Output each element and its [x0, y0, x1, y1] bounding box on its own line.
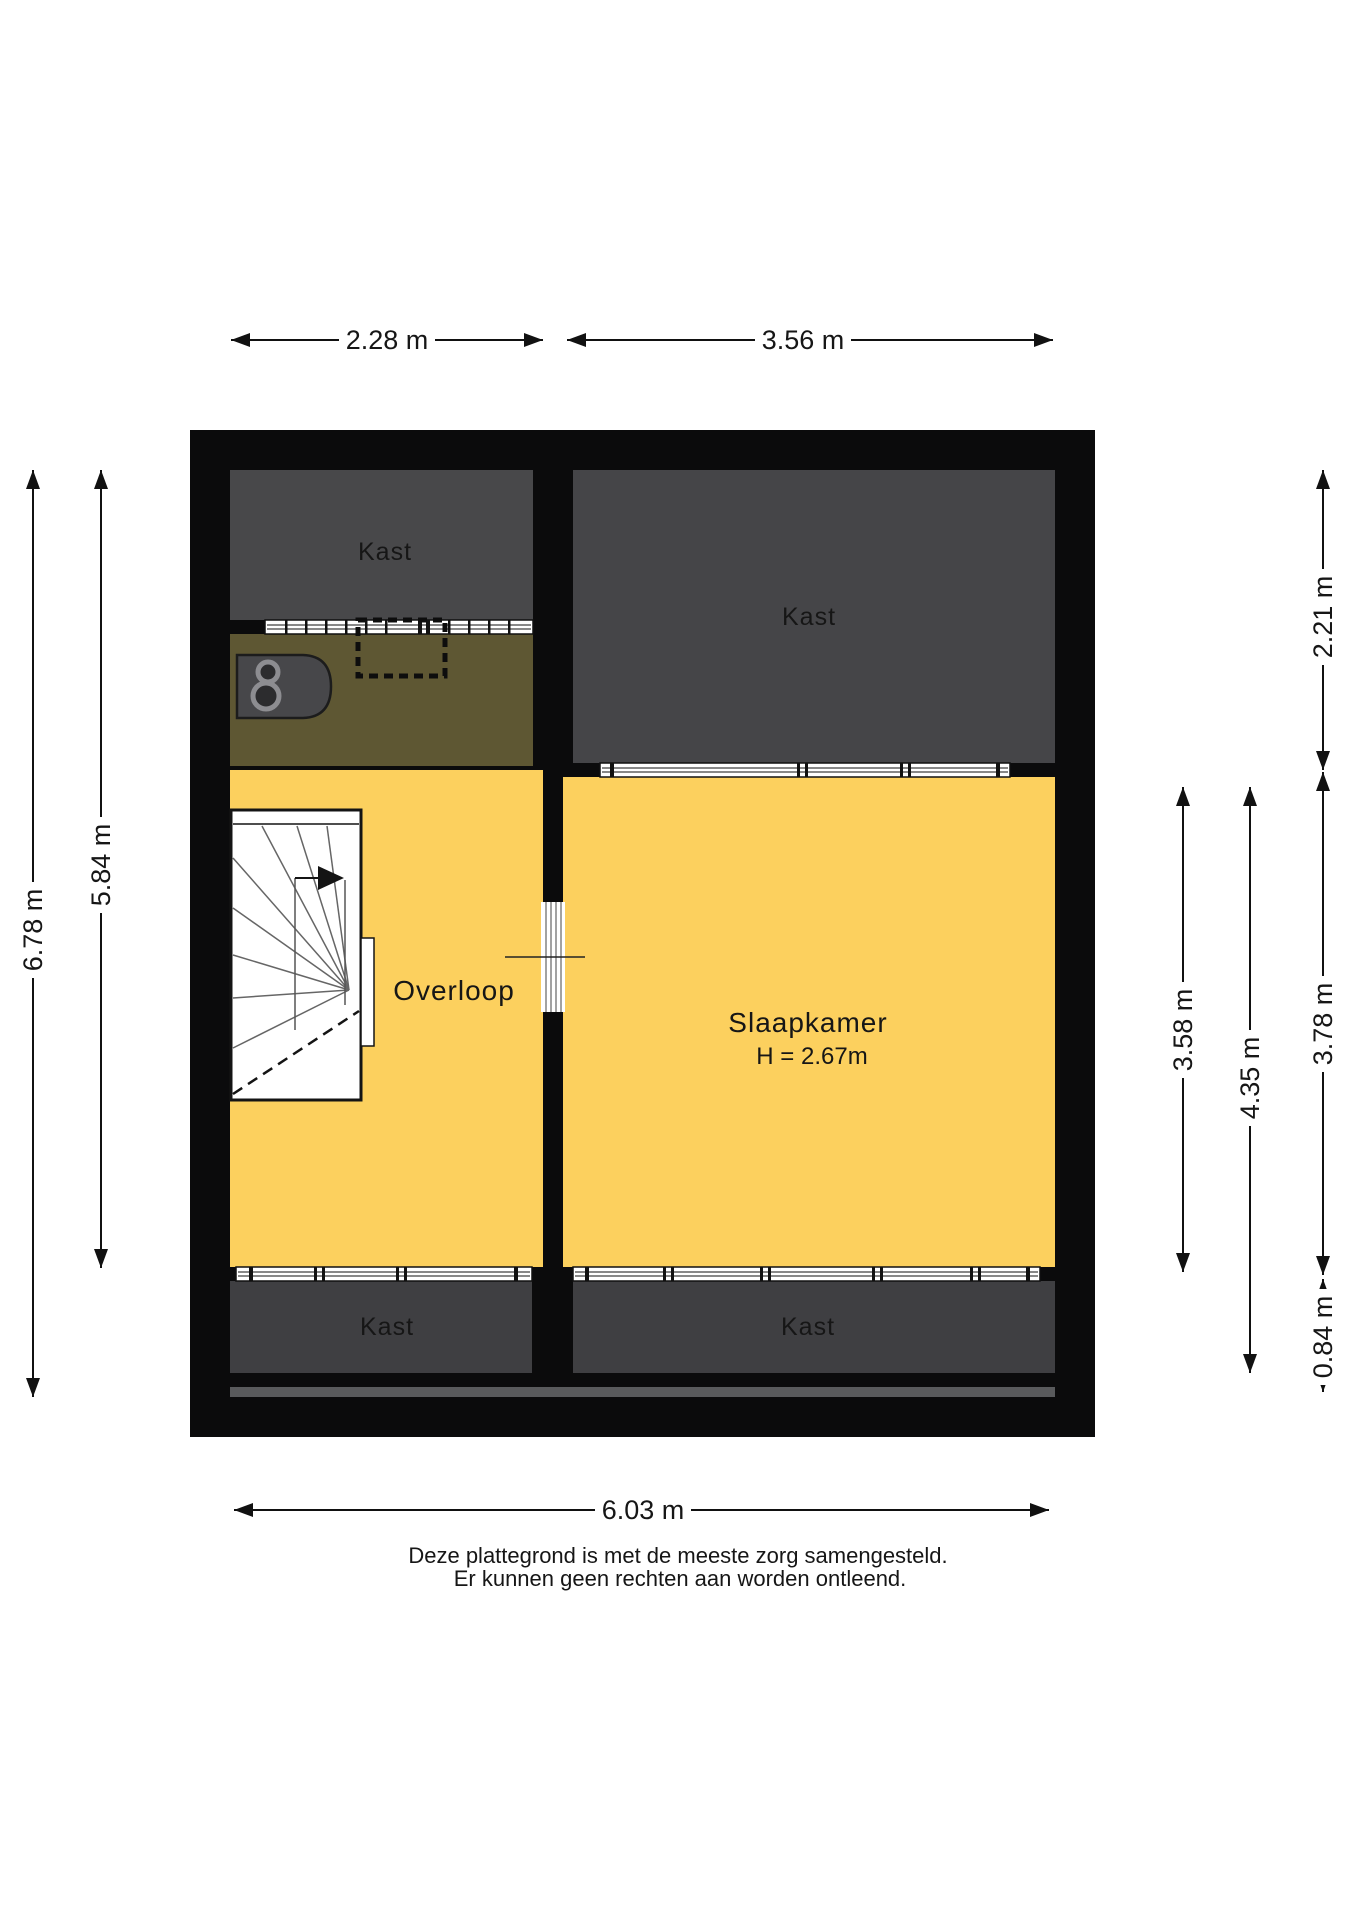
dimension-right-kast-bottom-depth: 0.84 m	[1307, 1279, 1339, 1392]
dimension-top-left-width: 2.28 m	[231, 324, 543, 356]
svg-text:4.35 m: 4.35 m	[1235, 1037, 1265, 1120]
svg-text:2.21 m: 2.21 m	[1308, 576, 1338, 659]
label-slaapkamer-height: H = 2.67m	[756, 1043, 867, 1070]
label-kast-top-right: Kast	[782, 603, 836, 631]
dimension-right-inner-height: 3.58 m	[1167, 787, 1199, 1272]
floorplan-drawing: Kast Kast Overloop Slaapkamer H = 2.67m …	[0, 0, 1358, 1920]
floorplan-page: Kast Kast Overloop Slaapkamer H = 2.67m …	[0, 0, 1358, 1920]
dimension-right-outer-height: 4.35 m	[1234, 787, 1266, 1373]
svg-text:3.56 m: 3.56 m	[762, 325, 845, 355]
disclaimer-line-2: Er kunnen geen rechten aan worden ontlee…	[454, 1566, 907, 1591]
dimension-bottom-width: 6.03 m	[234, 1494, 1049, 1526]
bottom-gray-strip	[230, 1387, 1055, 1397]
dimension-right-room-depth: 3.78 m	[1307, 772, 1339, 1275]
window-band-bottom-right	[573, 1267, 1055, 1281]
svg-text:6.78 m: 6.78 m	[18, 889, 48, 972]
svg-text:2.28 m: 2.28 m	[346, 325, 429, 355]
label-kast-top-left: Kast	[358, 538, 412, 566]
label-overloop: Overloop	[393, 975, 515, 1006]
svg-text:3.58 m: 3.58 m	[1168, 989, 1198, 1072]
dimension-left-inner-height: 5.84 m	[85, 470, 117, 1268]
boiler-icon	[237, 655, 331, 718]
stair-wall-opening	[361, 938, 374, 1046]
svg-text:3.78 m: 3.78 m	[1308, 983, 1338, 1066]
disclaimer-line-1: Deze plattegrond is met de meeste zorg s…	[408, 1543, 947, 1568]
wall-brown-yellow-divider	[230, 766, 543, 770]
center-wall-top	[533, 470, 573, 770]
dimension-right-kast-depth: 2.21 m	[1307, 470, 1339, 770]
label-kast-bottom-right: Kast	[781, 1313, 835, 1341]
dimension-top-right-width: 3.56 m	[567, 324, 1053, 356]
window-band-top-right	[573, 763, 1055, 777]
center-wall-mid-upper	[543, 770, 563, 902]
svg-text:0.84 m: 0.84 m	[1308, 1296, 1338, 1379]
label-slaapkamer: Slaapkamer	[728, 1007, 887, 1038]
staircase	[231, 810, 374, 1100]
dimension-left-outer-height: 6.78 m	[17, 470, 49, 1397]
center-wall-mid-lower	[543, 1012, 563, 1267]
svg-text:6.03 m: 6.03 m	[602, 1495, 685, 1525]
label-kast-bottom-left: Kast	[360, 1313, 414, 1341]
bottom-inner-wall	[230, 1373, 1055, 1387]
svg-text:5.84 m: 5.84 m	[86, 824, 116, 907]
window-band-bottom-left	[230, 1267, 532, 1281]
center-wall-bottom	[532, 1267, 573, 1373]
